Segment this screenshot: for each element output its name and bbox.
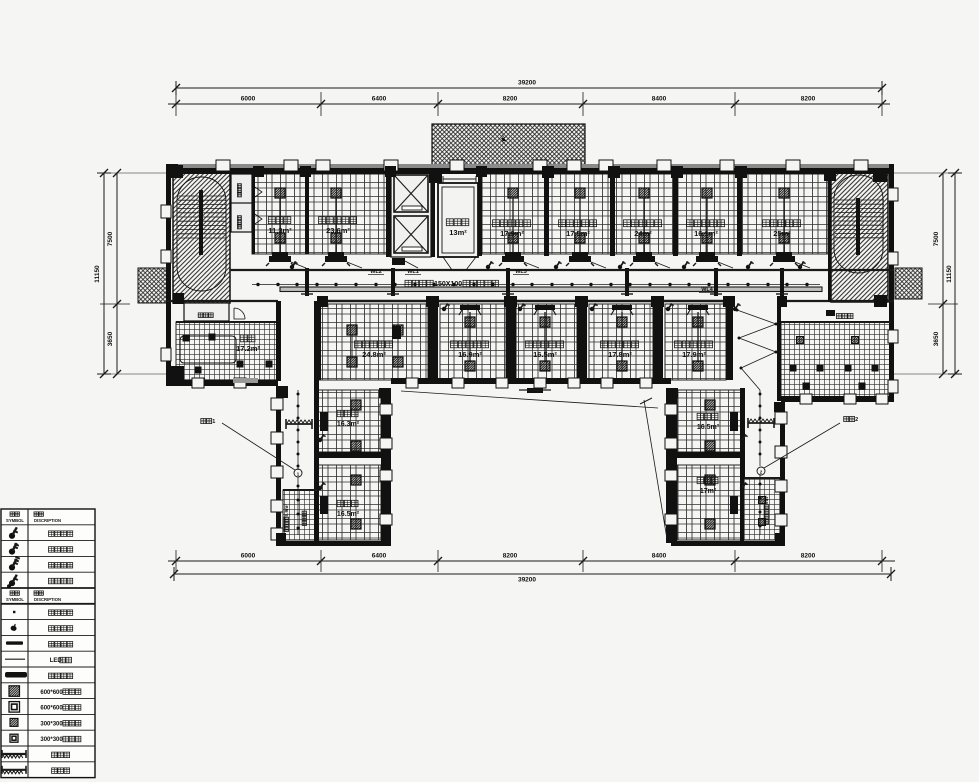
svg-text:6400: 6400 xyxy=(372,553,387,560)
svg-text:39200: 39200 xyxy=(518,577,536,584)
svg-text:WL4: WL4 xyxy=(701,287,714,293)
svg-text:SYMBOL: SYMBOL xyxy=(6,518,24,523)
svg-text:WL1: WL1 xyxy=(407,269,419,275)
svg-text:24m²: 24m² xyxy=(634,229,652,238)
svg-text:5.9m²: 5.9m² xyxy=(284,504,290,517)
svg-text:2: 2 xyxy=(855,417,858,423)
svg-text:39200: 39200 xyxy=(518,80,536,87)
svg-text:8200: 8200 xyxy=(801,553,816,560)
svg-text:300*300: 300*300 xyxy=(40,737,63,743)
svg-text:16.5m²: 16.5m² xyxy=(697,424,720,431)
svg-text:16.1m²: 16.1m² xyxy=(694,229,718,238)
svg-text:8400: 8400 xyxy=(652,553,667,560)
svg-text:23.6m²: 23.6m² xyxy=(326,226,350,235)
svg-text:6000: 6000 xyxy=(241,96,256,103)
svg-text:16.5m²: 16.5m² xyxy=(533,350,557,359)
svg-text:24.8m²: 24.8m² xyxy=(362,350,386,359)
svg-text:9m²: 9m² xyxy=(764,495,770,504)
svg-text:7500: 7500 xyxy=(933,231,940,246)
svg-text:17m²: 17m² xyxy=(700,488,717,495)
svg-text:WL3: WL3 xyxy=(515,269,527,275)
svg-text:SYMBOL: SYMBOL xyxy=(6,597,24,602)
svg-text:1: 1 xyxy=(212,419,215,425)
svg-text:8200: 8200 xyxy=(801,96,816,103)
svg-text:17.2m²: 17.2m² xyxy=(236,344,260,353)
svg-text:11150: 11150 xyxy=(94,265,101,283)
svg-text:600*600: 600*600 xyxy=(40,706,63,712)
svg-text:300*300: 300*300 xyxy=(40,721,63,727)
svg-text:WL2: WL2 xyxy=(370,269,382,275)
svg-text:DISCRIPTION: DISCRIPTION xyxy=(34,518,61,523)
svg-text:3650: 3650 xyxy=(933,331,940,346)
svg-text:17.8m²: 17.8m² xyxy=(608,350,632,359)
svg-text:8200: 8200 xyxy=(503,96,518,103)
svg-text:8400: 8400 xyxy=(652,96,667,103)
svg-text:8200: 8200 xyxy=(503,553,518,560)
svg-text:25m²: 25m² xyxy=(773,229,791,238)
svg-text:600*600: 600*600 xyxy=(40,690,63,696)
svg-text:16.3m²: 16.3m² xyxy=(337,421,360,428)
svg-text:17.9m²: 17.9m² xyxy=(500,229,524,238)
svg-text:DISCRIPTION: DISCRIPTION xyxy=(34,597,61,602)
svg-text:17.9m²: 17.9m² xyxy=(682,350,706,359)
svg-text:13m²: 13m² xyxy=(449,228,467,237)
svg-text:16.5m²: 16.5m² xyxy=(337,511,360,518)
svg-text:6400: 6400 xyxy=(372,96,387,103)
svg-text:17.5m²: 17.5m² xyxy=(566,229,590,238)
svg-text:6000: 6000 xyxy=(241,553,256,560)
svg-text:16.9m²: 16.9m² xyxy=(458,350,482,359)
svg-text:3650: 3650 xyxy=(107,331,114,346)
svg-text:11150: 11150 xyxy=(946,265,953,283)
svg-text:7500: 7500 xyxy=(107,231,114,246)
svg-text:11.3m²: 11.3m² xyxy=(268,226,292,235)
